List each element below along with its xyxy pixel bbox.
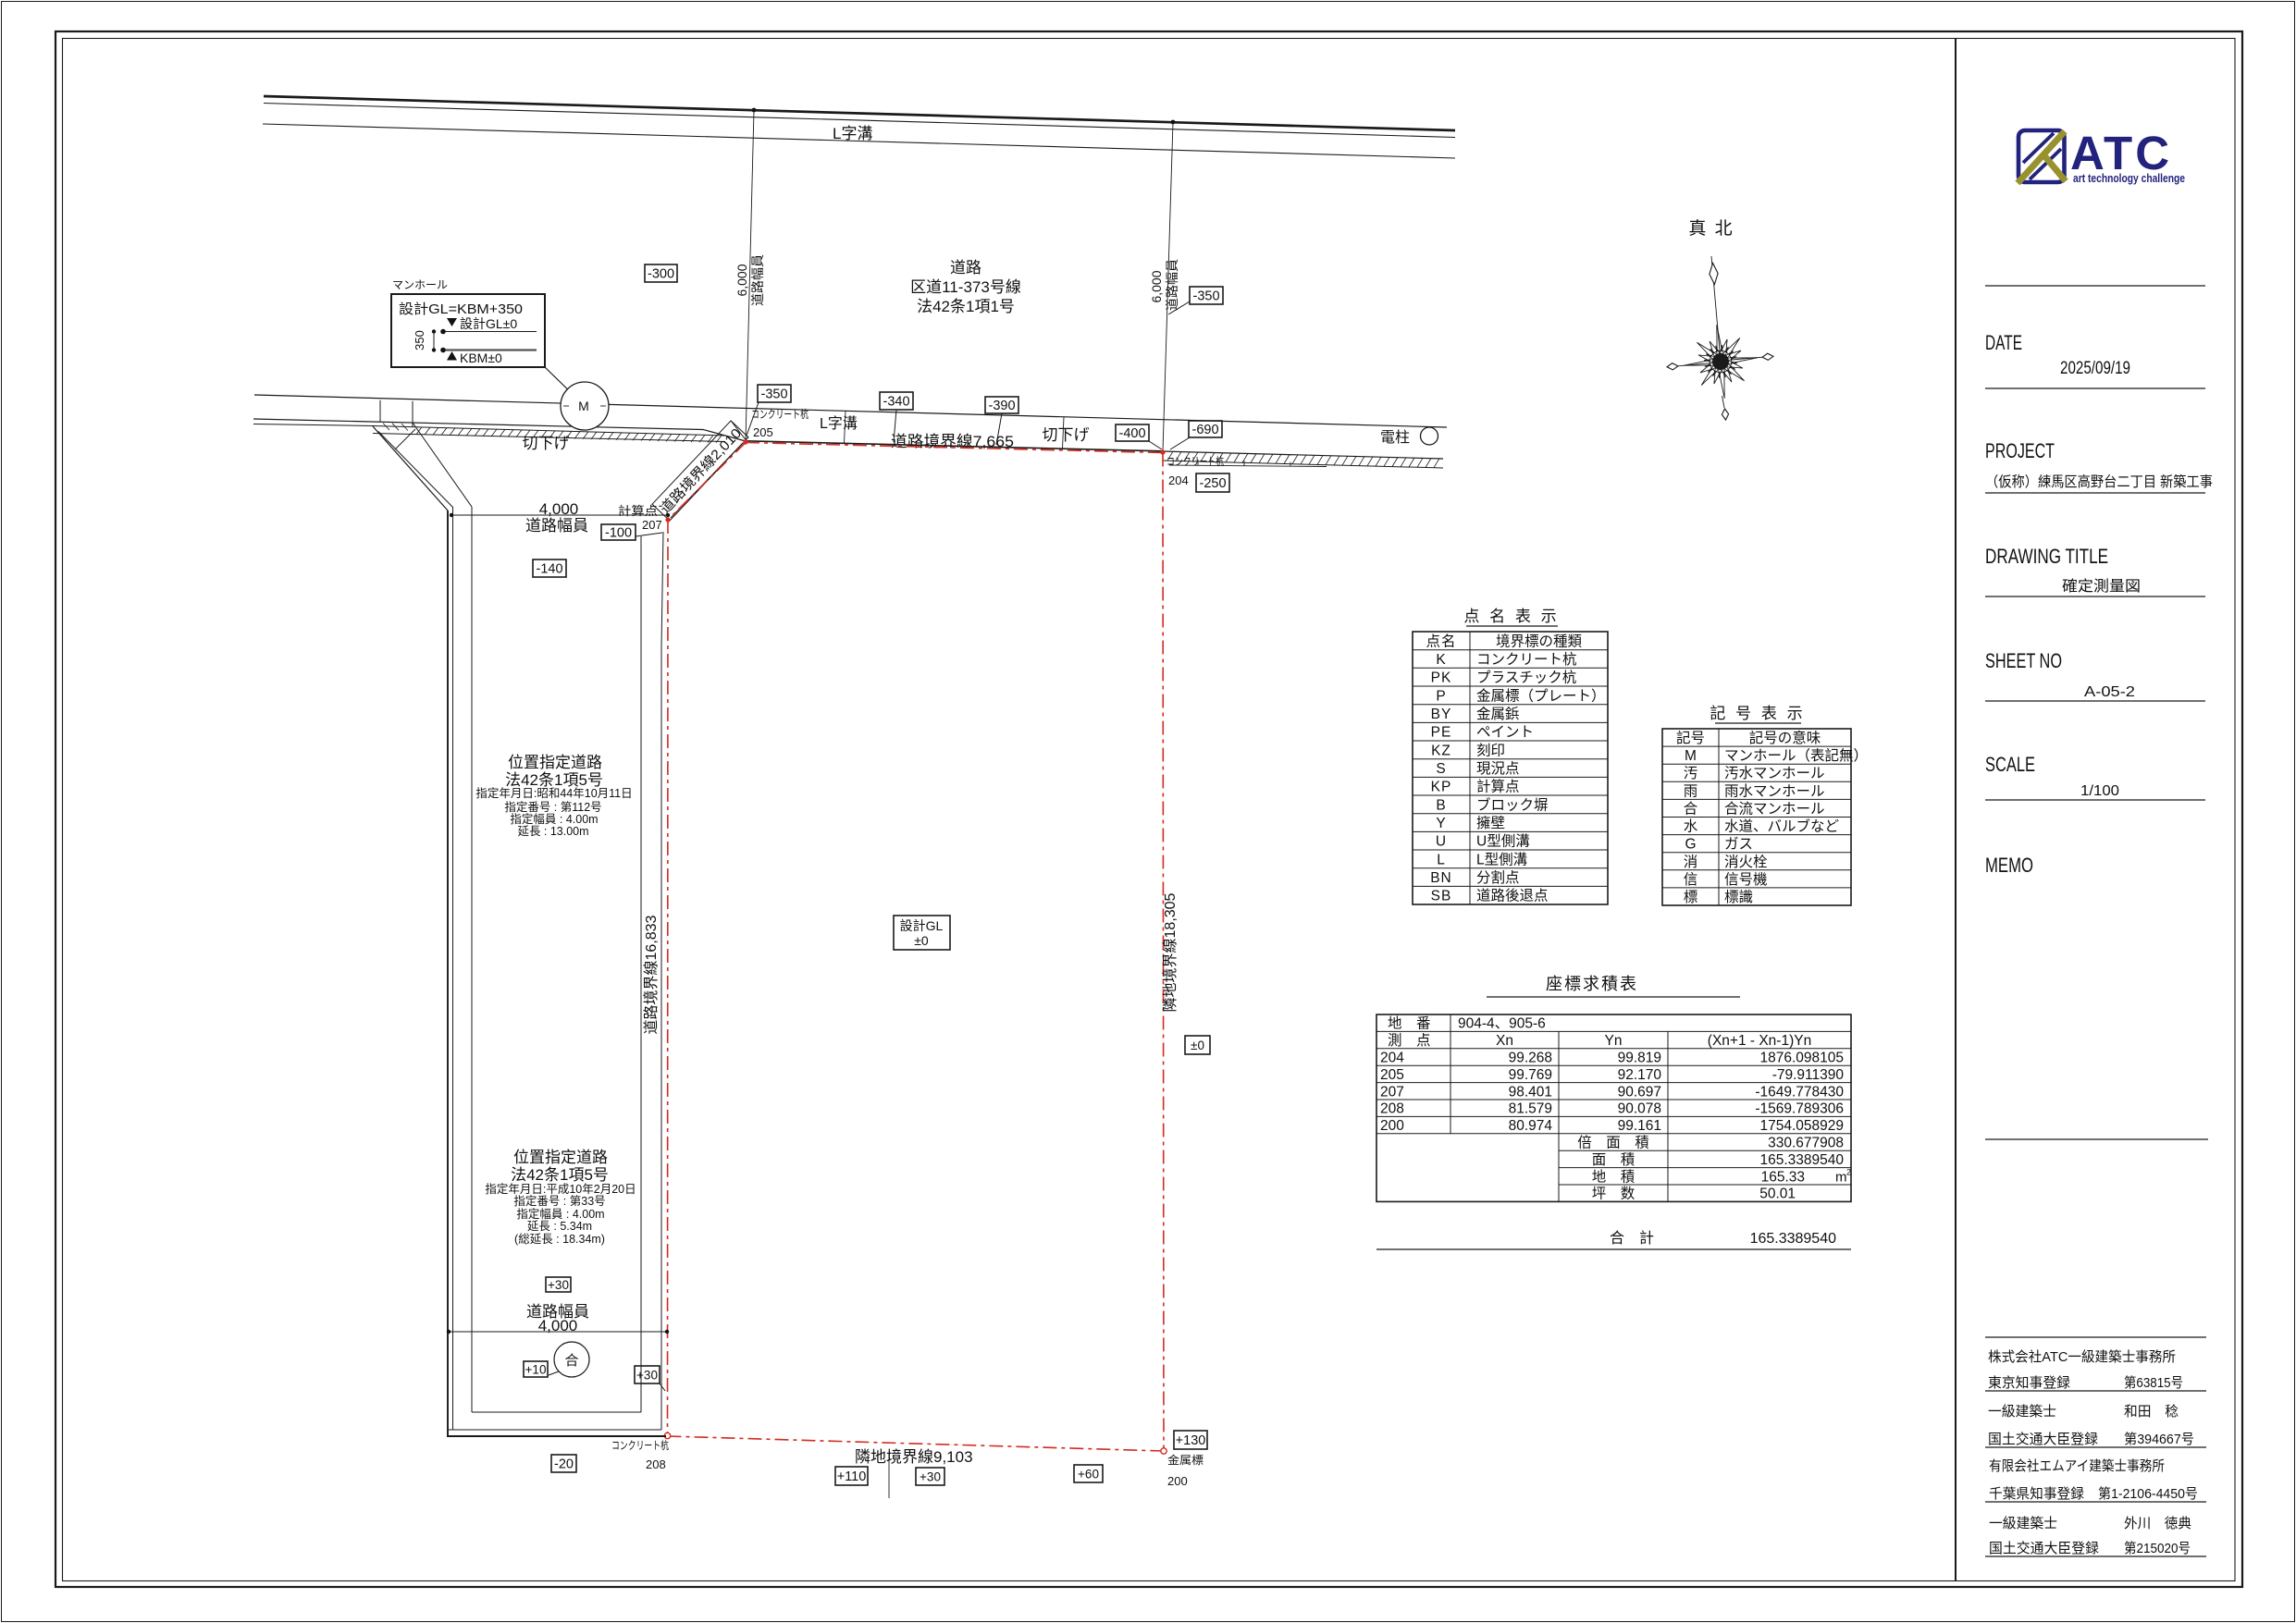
svg-text:L字溝: L字溝 [820,415,858,432]
svg-text:指定年月日:平成10年2月20日: 指定年月日:平成10年2月20日 [485,1182,636,1196]
svg-text:SHEET NO: SHEET NO [1985,649,2062,672]
svg-text:A-05-2: A-05-2 [2084,684,2135,700]
svg-text:コンクリート杭: コンクリート杭 [751,407,809,421]
svg-text:記 号 表 示: 記 号 表 示 [1710,705,1805,722]
svg-text:標: 標 [1684,889,1698,905]
svg-text:Yn: Yn [1605,1033,1623,1049]
svg-text:-250: -250 [1199,476,1226,491]
svg-text:BN: BN [1430,870,1452,886]
svg-text:延長 : 5.34m: 延長 : 5.34m [527,1220,592,1233]
svg-text:-140: -140 [536,562,562,577]
svg-text:設計GL±0: 設計GL±0 [460,316,517,331]
svg-text:-100: -100 [605,526,632,541]
svg-text:水道、バルブなど: 水道、バルブなど [1724,818,1840,835]
svg-text:真 北: 真 北 [1688,218,1734,239]
svg-text:隣地境界線18,305: 隣地境界線18,305 [1161,892,1179,1012]
svg-text:有限会社エムアイ建築士事務所: 有限会社エムアイ建築士事務所 [1989,1457,2165,1474]
svg-text:-400: -400 [1118,426,1145,441]
svg-text:設計GL=KBM+350: 設計GL=KBM+350 [399,301,523,317]
svg-text:東京知事登録: 東京知事登録 [1988,1375,2070,1391]
svg-text:+30: +30 [920,1469,941,1483]
svg-text:位置指定道路: 位置指定道路 [508,754,602,771]
svg-text:水: 水 [1684,818,1698,835]
svg-text:-79.911390: -79.911390 [1772,1067,1845,1083]
svg-text:165.33: 165.33 [1761,1169,1805,1185]
svg-text:6,000: 6,000 [1149,270,1164,302]
svg-text:合流マンホール: 合流マンホール [1724,800,1825,817]
svg-text:(Xn+1 - Xn-1)Yn: (Xn+1 - Xn-1)Yn [1708,1033,1811,1049]
svg-text:208: 208 [646,1457,666,1471]
svg-text:350: 350 [413,330,426,350]
svg-text:207: 207 [642,518,662,532]
svg-text:コンクリート杭: コンクリート杭 [611,1438,669,1452]
svg-text:205: 205 [753,425,773,439]
svg-text:合 計: 合 計 [1610,1230,1654,1247]
svg-text:90.078: 90.078 [1618,1101,1661,1117]
svg-text:金属標: 金属標 [1167,1453,1204,1467]
svg-text:80.974: 80.974 [1509,1118,1553,1134]
svg-text:点名: 点名 [1426,633,1456,649]
svg-text:第1-2106-4450号: 第1-2106-4450号 [2098,1485,2198,1502]
svg-text:道路後退点: 道路後退点 [1476,888,1549,904]
svg-text:設計GL: 設計GL [900,918,944,933]
svg-text:雨水マンホール: 雨水マンホール [1724,782,1825,799]
svg-text:DATE: DATE [1985,331,2022,354]
svg-text:切下げ: 切下げ [523,435,570,452]
svg-text:-350: -350 [760,387,787,402]
svg-text:ペイント: ペイント [1476,725,1534,741]
svg-text:法42条1項5号: 法42条1項5号 [511,1166,609,1184]
svg-text:道路境界線16,833: 道路境界線16,833 [642,915,660,1034]
svg-text:-300: -300 [648,267,674,282]
svg-text:+130: +130 [1176,1433,1206,1448]
svg-text:m: m [1835,1169,1847,1185]
svg-text:確定測量図: 確定測量図 [2062,578,2141,595]
svg-text:-340: -340 [883,395,909,410]
svg-text:+30: +30 [548,1278,569,1292]
svg-text:204: 204 [1168,473,1189,487]
svg-text:区道11-373号線: 区道11-373号線 [910,278,1021,296]
svg-text:(総延長 : 18.34m): (総延長 : 18.34m) [514,1233,605,1246]
svg-text:DRAWING TITLE: DRAWING TITLE [1985,545,2108,568]
svg-text:207: 207 [1380,1084,1404,1100]
svg-text:KBM±0: KBM±0 [460,350,502,365]
svg-text:98.401: 98.401 [1509,1084,1552,1100]
svg-text:位置指定道路: 位置指定道路 [513,1149,608,1166]
svg-text:地 積: 地 積 [1592,1168,1636,1185]
svg-text:第215020号: 第215020号 [2124,1540,2191,1556]
svg-text:点 名 表 示: 点 名 表 示 [1463,608,1559,625]
svg-text:92.170: 92.170 [1618,1067,1662,1083]
svg-text:境界標の種類: 境界標の種類 [1496,632,1583,649]
svg-text:art technology challenge: art technology challenge [2073,172,2185,185]
svg-text:道路幅員: 道路幅員 [1165,259,1179,311]
svg-text:-20: -20 [554,1457,574,1472]
svg-text:204: 204 [1380,1051,1404,1066]
svg-text:道路幅員: 道路幅員 [525,517,588,535]
svg-text:道路幅員: 道路幅員 [750,254,765,306]
svg-text:BY: BY [1431,707,1452,722]
svg-text:指定番号 : 第112号: 指定番号 : 第112号 [504,800,601,814]
svg-text:合: 合 [564,1353,578,1369]
svg-text:MEMO: MEMO [1985,854,2033,877]
svg-text:1/100: 1/100 [2080,783,2119,799]
svg-text:2: 2 [1846,1167,1851,1176]
svg-text:1876.098105: 1876.098105 [1759,1051,1844,1066]
svg-text:延長 : 13.00m: 延長 : 13.00m [517,825,588,838]
svg-text:P: P [1436,688,1446,704]
svg-text:330.677908: 330.677908 [1768,1136,1844,1151]
svg-text:KZ: KZ [1431,743,1451,758]
svg-text:指定年月日:昭和44年10月11日: 指定年月日:昭和44年10月11日 [475,786,632,800]
svg-text:信: 信 [1684,871,1698,888]
svg-text:第63815号: 第63815号 [2124,1374,2183,1391]
svg-text:6,000: 6,000 [734,264,749,296]
svg-text:81.579: 81.579 [1509,1101,1552,1117]
svg-text:コンクリート杭: コンクリート杭 [1476,651,1577,668]
svg-text:電柱: 電柱 [1380,429,1410,446]
svg-text:信号機: 信号機 [1724,871,1768,888]
svg-text:国土交通大臣登録: 国土交通大臣登録 [1989,1540,2099,1556]
svg-text:標識: 標識 [1724,889,1753,905]
svg-text:面 積: 面 積 [1592,1151,1636,1168]
svg-text:SB: SB [1431,889,1452,904]
svg-text:904-4、905-6: 904-4、905-6 [1458,1016,1546,1032]
svg-text:座標求積表: 座標求積表 [1546,975,1638,993]
svg-text:±0: ±0 [1191,1039,1204,1052]
svg-text:消火栓: 消火栓 [1724,854,1768,870]
svg-text:マンホール（表記無）: マンホール（表記無） [1724,747,1868,764]
svg-text:指定幅員 : 4.00m: 指定幅員 : 4.00m [510,812,598,826]
svg-text:PK: PK [1431,670,1452,686]
svg-text:+110: +110 [837,1469,867,1484]
svg-text:消: 消 [1684,854,1698,870]
svg-text:隣地境界線9,103: 隣地境界線9,103 [855,1448,973,1466]
svg-text:第394667号: 第394667号 [2124,1431,2194,1447]
svg-text:+10: +10 [525,1362,547,1376]
svg-text:和田 稔: 和田 稔 [2124,1404,2179,1420]
svg-text:指定番号 : 第33号: 指定番号 : 第33号 [513,1194,605,1208]
svg-text:205: 205 [1380,1067,1404,1083]
svg-text:50.01: 50.01 [1759,1187,1796,1202]
svg-text:200: 200 [1167,1474,1188,1488]
svg-text:L: L [1437,852,1446,867]
svg-text:（仮称）練馬区高野台二丁目 新築工事: （仮称）練馬区高野台二丁目 新築工事 [1985,473,2213,490]
svg-text:合: 合 [1684,800,1698,817]
svg-text:記号: 記号 [1676,730,1705,746]
svg-text:ガス: ガス [1724,836,1753,853]
svg-text:+30: +30 [636,1368,658,1382]
svg-text:Y: Y [1436,816,1446,831]
svg-text:記号の意味: 記号の意味 [1749,729,1821,746]
svg-text:千葉県知事登録: 千葉県知事登録 [1989,1486,2084,1502]
svg-text:法42条1項1号: 法42条1項1号 [917,298,1015,315]
svg-text:測 点: 測 点 [1388,1032,1431,1049]
svg-text:切下げ: 切下げ [1043,426,1090,444]
svg-text:-1649.778430: -1649.778430 [1755,1084,1844,1100]
svg-text:汚水マンホール: 汚水マンホール [1724,765,1825,781]
svg-text:B: B [1436,797,1446,813]
svg-text:地 番: 地 番 [1388,1015,1431,1032]
svg-text:165.3389540: 165.3389540 [1750,1231,1837,1247]
svg-text:PE: PE [1431,725,1452,741]
svg-text:-350: -350 [1192,289,1219,304]
svg-text:L字溝: L字溝 [833,125,872,142]
svg-text:4,000: 4,000 [539,500,579,518]
svg-text:M: M [578,399,589,413]
svg-text:株式会社ATC一級建築士事務所: 株式会社ATC一級建築士事務所 [1988,1348,2176,1365]
svg-text:U: U [1436,834,1447,850]
svg-text:金属鋲: 金属鋲 [1476,706,1520,722]
svg-text:外川 徳典: 外川 徳典 [2124,1516,2191,1531]
svg-text:2025/09/19: 2025/09/19 [2060,359,2130,378]
svg-text:汚: 汚 [1684,765,1698,781]
svg-text:擁壁: 擁壁 [1476,815,1505,831]
svg-text:-1569.789306: -1569.789306 [1755,1101,1844,1117]
svg-text:4,000: 4,000 [538,1317,578,1334]
svg-text:マンホール: マンホール [392,278,448,291]
svg-text:坪 数: 坪 数 [1592,1186,1636,1202]
svg-text:現況点: 現況点 [1476,760,1520,777]
svg-text:一級建築士: 一級建築士 [1989,1515,2057,1531]
svg-text:プラスチック杭: プラスチック杭 [1476,670,1576,686]
svg-text:Xn: Xn [1496,1033,1513,1049]
svg-text:U型側溝: U型側溝 [1476,833,1530,850]
svg-text:国土交通大臣登録: 国土交通大臣登録 [1988,1431,2098,1447]
svg-text:1754.058929: 1754.058929 [1759,1118,1844,1134]
svg-text:刻印: 刻印 [1476,742,1505,758]
svg-text:計算点: 計算点 [618,504,658,518]
svg-text:一級建築士: 一級建築士 [1988,1403,2056,1420]
svg-text:-690: -690 [1191,423,1218,437]
svg-text:208: 208 [1380,1101,1404,1117]
svg-text:ブロック塀: ブロック塀 [1476,795,1549,813]
svg-text:M: M [1685,748,1697,764]
svg-text:200: 200 [1380,1118,1404,1134]
svg-text:計算点: 計算点 [1476,778,1520,795]
svg-text:99.819: 99.819 [1618,1051,1661,1066]
svg-text:金属標（プレート）: 金属標（プレート） [1476,687,1606,704]
svg-text:99.769: 99.769 [1509,1067,1552,1083]
svg-text:99.161: 99.161 [1618,1118,1661,1134]
svg-text:99.268: 99.268 [1509,1051,1552,1066]
svg-text:倍 面 積: 倍 面 積 [1577,1135,1649,1151]
svg-text:PROJECT: PROJECT [1985,439,2055,462]
svg-text:L型側溝: L型側溝 [1476,851,1527,867]
svg-text:+60: +60 [1078,1467,1099,1481]
svg-text:90.697: 90.697 [1618,1084,1661,1100]
svg-text:G: G [1685,837,1696,853]
svg-text:雨: 雨 [1684,783,1698,799]
svg-text:K: K [1436,652,1446,668]
svg-text:±0: ±0 [914,933,929,948]
svg-text:SCALE: SCALE [1985,753,2035,776]
svg-text:指定幅員 : 4.00m: 指定幅員 : 4.00m [516,1207,604,1221]
svg-text:分割点: 分割点 [1476,869,1520,886]
svg-text:コンクリート杭: コンクリート杭 [1167,454,1224,468]
svg-text:-390: -390 [988,399,1015,413]
svg-text:道路: 道路 [950,259,981,277]
svg-text:165.3389540: 165.3389540 [1759,1152,1844,1168]
svg-text:S: S [1436,761,1446,777]
svg-text:KP: KP [1431,780,1452,795]
